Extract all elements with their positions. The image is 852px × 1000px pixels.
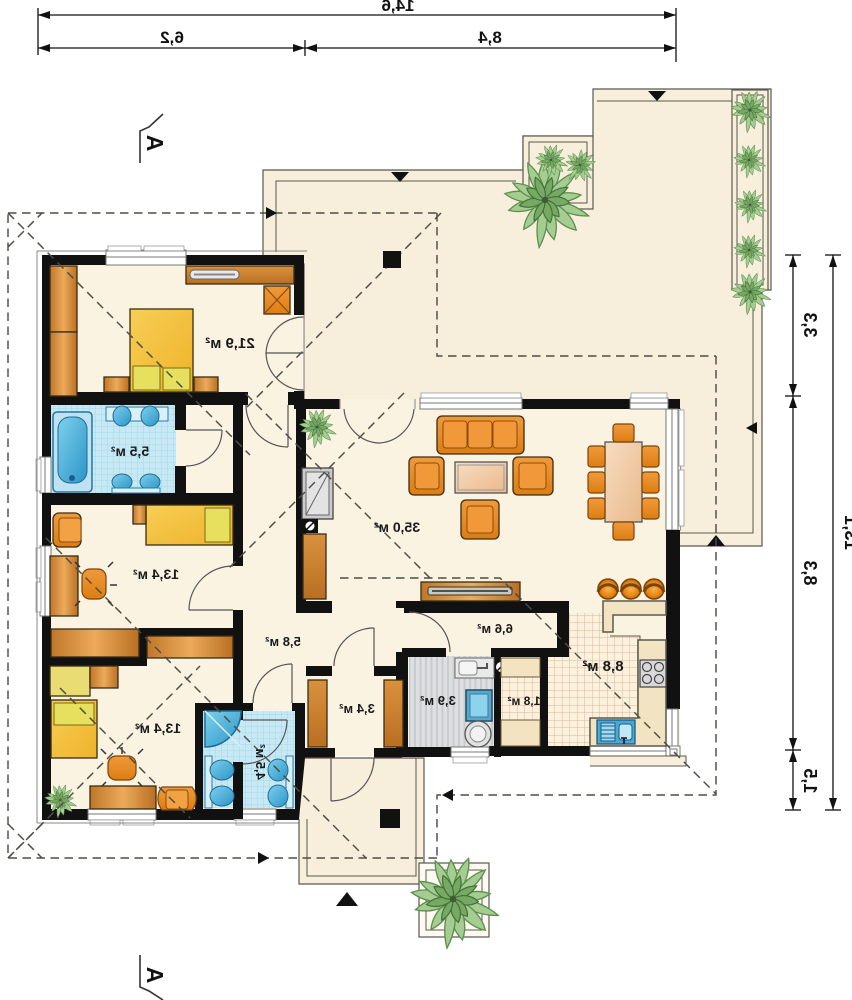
svg-text:6,6 м²: 6,6 м²	[477, 621, 513, 636]
svg-text:1,8 м²: 1,8 м²	[508, 694, 541, 708]
svg-text:3,4 м²: 3,4 м²	[339, 701, 375, 716]
svg-text:3,3: 3,3	[800, 312, 820, 337]
svg-text:5,5 м²: 5,5 м²	[110, 443, 149, 459]
svg-text:1,5: 1,5	[800, 768, 820, 793]
svg-text:14,6: 14,6	[381, 0, 414, 15]
svg-text:13,1: 13,1	[841, 515, 852, 550]
svg-text:6,2: 6,2	[160, 28, 184, 47]
svg-text:4,5 м²: 4,5 м²	[253, 744, 268, 780]
svg-text:3,9 м²: 3,9 м²	[420, 693, 456, 708]
svg-text:A: A	[142, 135, 168, 152]
svg-text:5,8 м²: 5,8 м²	[265, 634, 301, 649]
svg-text:8,8 м²: 8,8 м²	[582, 658, 623, 675]
svg-text:21,9 м²: 21,9 м²	[205, 335, 254, 352]
svg-text:A: A	[142, 967, 168, 984]
svg-text:13,4 м²: 13,4 м²	[135, 720, 181, 736]
svg-text:13,4 м²: 13,4 м²	[133, 566, 179, 582]
svg-text:8,4: 8,4	[478, 28, 502, 47]
svg-text:8,3: 8,3	[800, 560, 820, 585]
svg-text:35,0 м²: 35,0 м²	[374, 519, 420, 535]
